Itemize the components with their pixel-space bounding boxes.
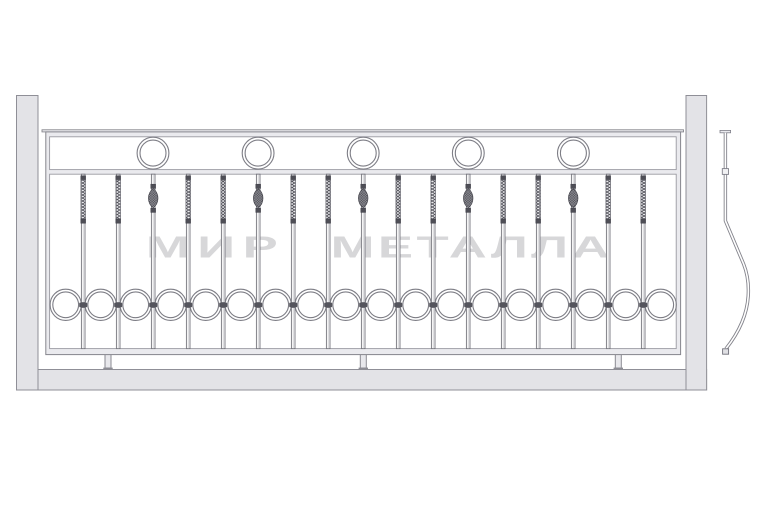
svg-text:МЕТАЛЛА: МЕТАЛЛА [331,230,613,264]
svg-text:МИР: МИР [146,230,285,264]
